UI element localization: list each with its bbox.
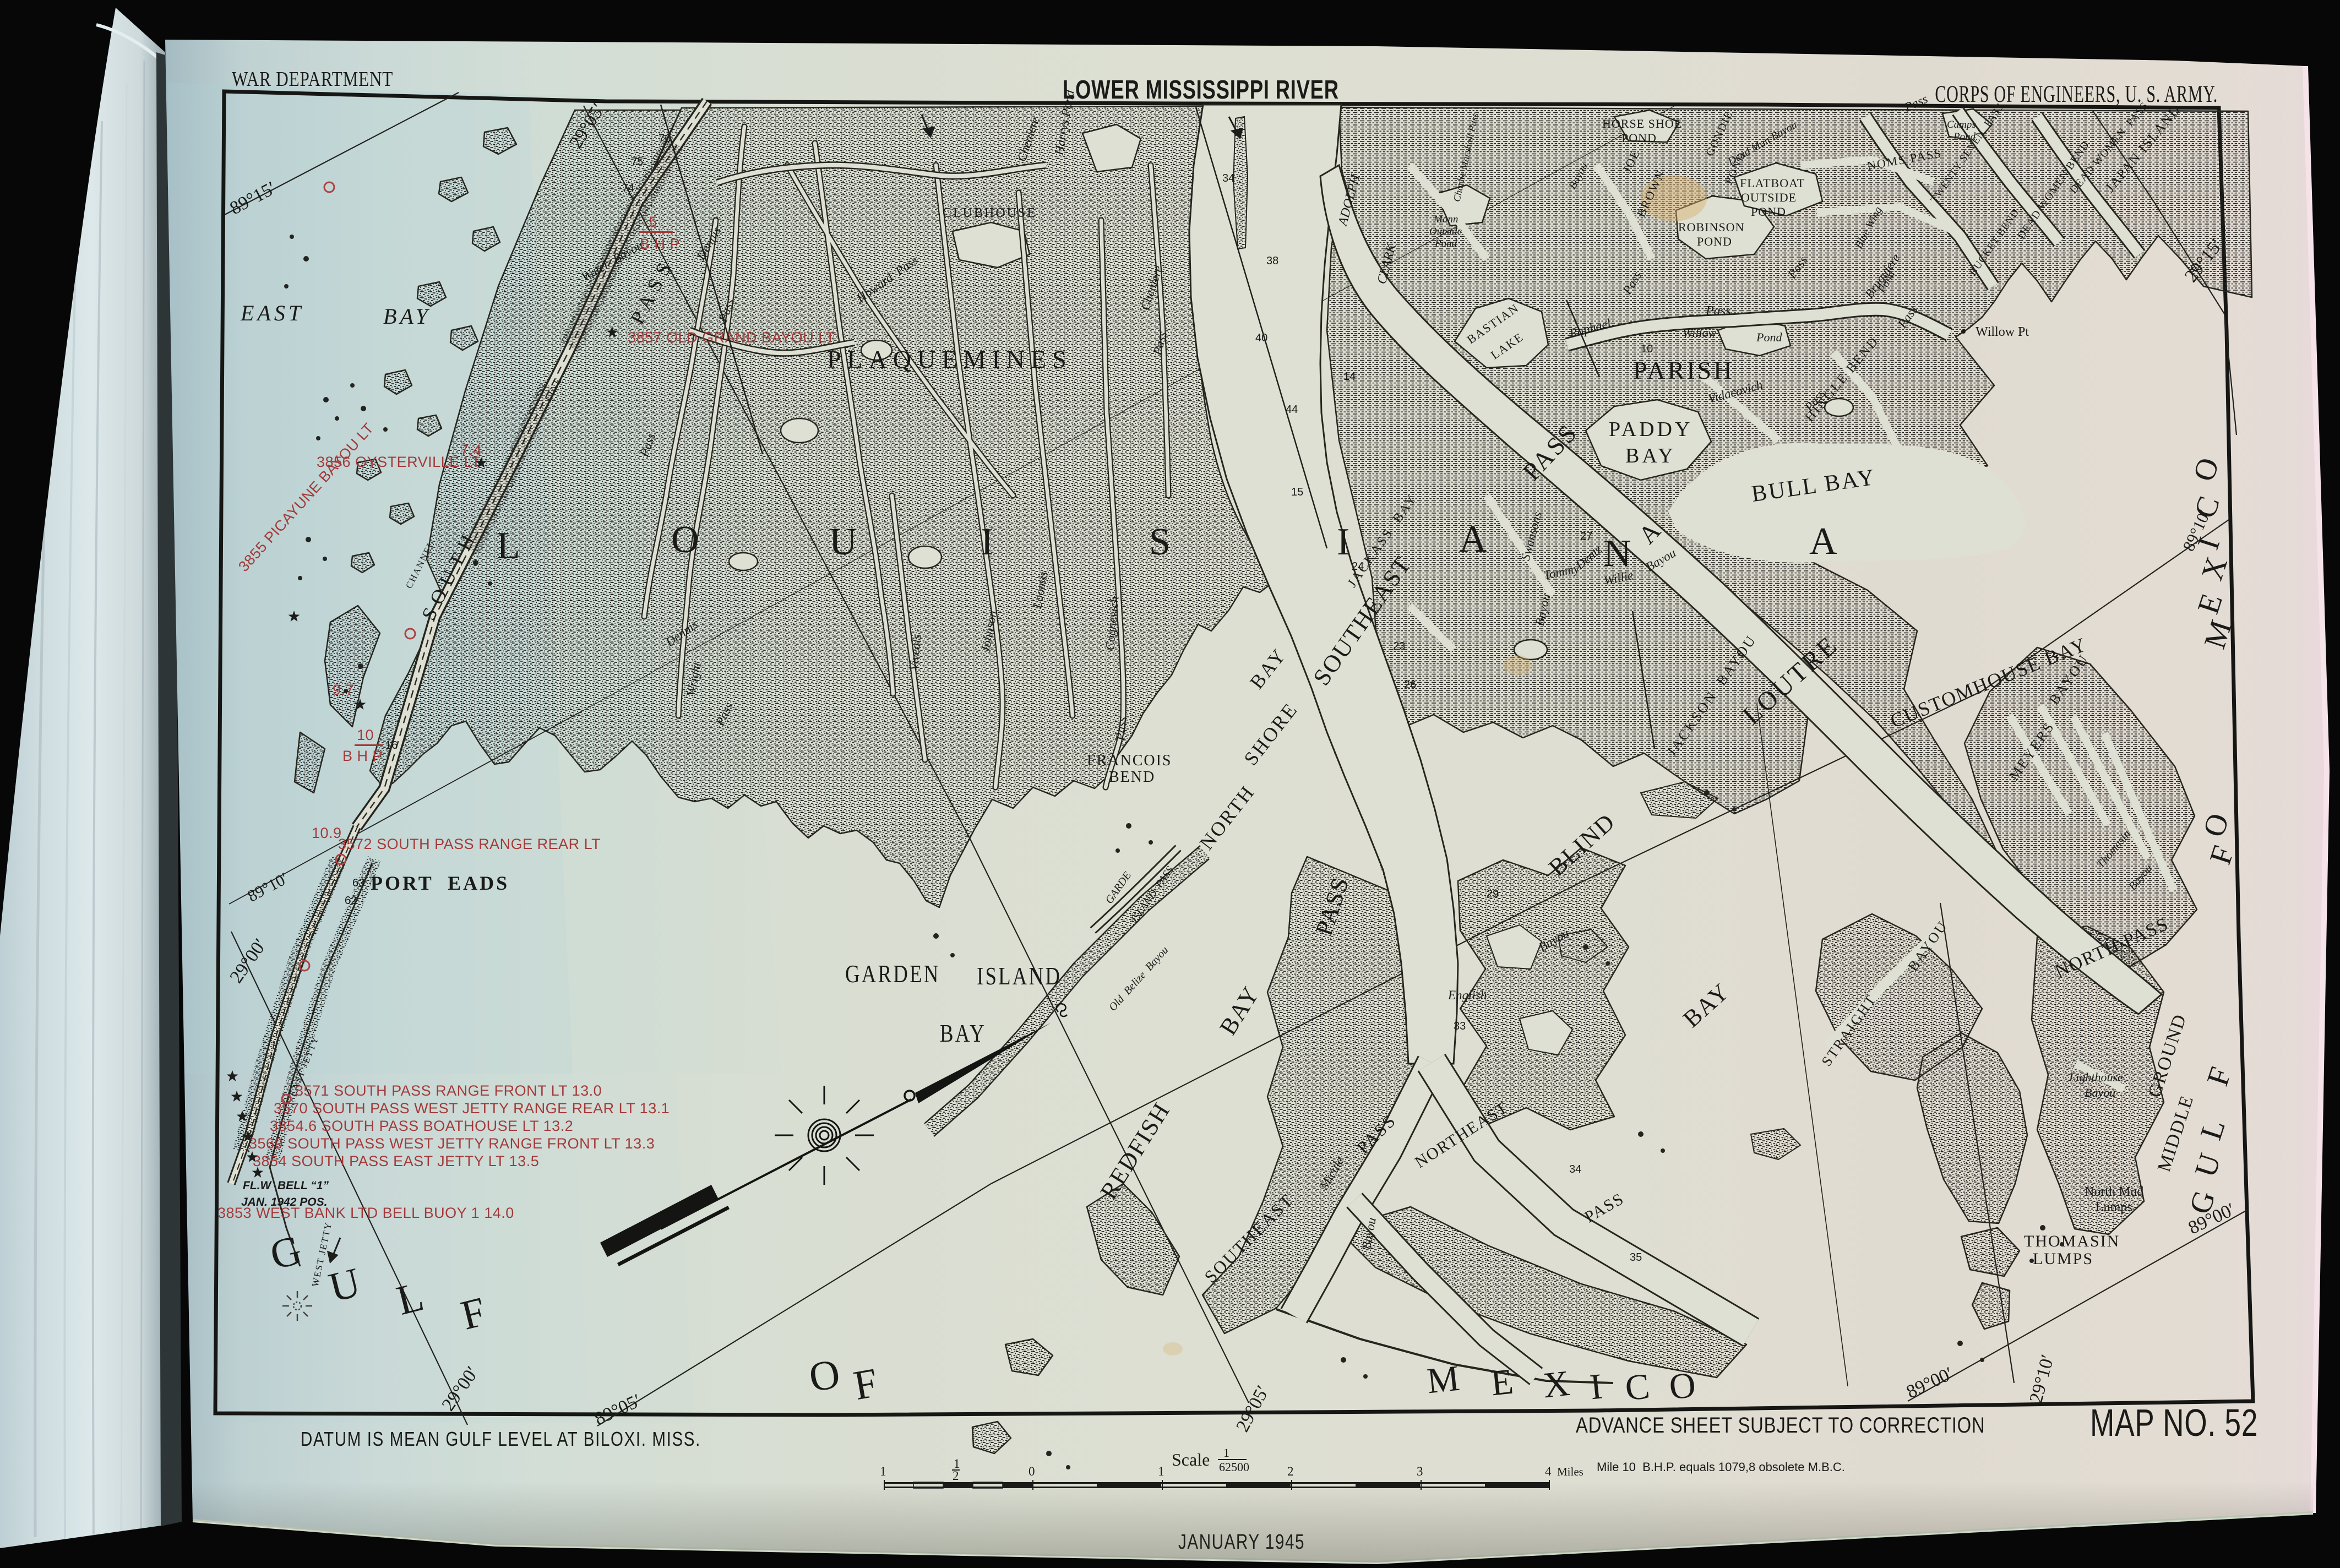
svg-text:POND: POND [1621,131,1657,145]
svg-text:PLAQUEMINES: PLAQUEMINES [827,345,1073,373]
svg-text:PADDY: PADDY [1609,418,1693,441]
svg-text:POND: POND [1751,205,1786,219]
svg-text:MAP NO. 52: MAP NO. 52 [2090,1402,2258,1445]
svg-text:14: 14 [1343,371,1356,383]
svg-text:A: A [1459,518,1487,560]
svg-text:27: 27 [1580,530,1592,542]
svg-text:Mile 10 B.H.P. equals 1079,8: Mile 10 B.H.P. equals 1079,8 obsolete M.… [1597,1460,1845,1474]
svg-text:5: 5 [649,214,657,230]
svg-text:I: I [1337,521,1349,563]
svg-text:O: O [671,519,699,561]
svg-text:1: 1 [880,1464,886,1478]
svg-text:FLATBOAT: FLATBOAT [1740,176,1805,190]
svg-text:ISLAND: ISLAND [977,962,1062,990]
svg-text:2: 2 [1287,1464,1294,1478]
svg-text:3569 SOUTH PASS WEST JETTY RAN: 3569 SOUTH PASS WEST JETTY RANGE FRONT L… [249,1135,655,1152]
svg-text:North Mud: North Mud [2085,1185,2143,1199]
svg-text:7.4: 7.4 [460,442,482,458]
svg-text:ROBINSON: ROBINSON [1678,220,1744,234]
svg-text:62: 62 [345,895,357,907]
svg-text:CLUBHOUSE: CLUBHOUSE [943,206,1037,220]
svg-text:Camps: Camps [1947,119,1976,130]
svg-text:24: 24 [1352,560,1364,573]
svg-text:BAY: BAY [940,1020,986,1048]
svg-text:Pass: Pass [1113,716,1129,742]
svg-text:Outside: Outside [1429,226,1462,237]
svg-text:75: 75 [631,156,643,168]
svg-text:10: 10 [1641,343,1653,355]
svg-text:3854.6 SOUTH PASS BOATHOUSE LT: 3854.6 SOUTH PASS BOATHOUSE LT 13.2 [270,1118,573,1134]
svg-text:BAY: BAY [383,304,431,329]
svg-text:Pass: Pass [1705,304,1730,318]
svg-text:HORSE SHOE: HORSE SHOE [1602,117,1682,130]
svg-text:S: S [1149,521,1171,563]
svg-text:Pond: Pond [1756,330,1782,344]
svg-text:EAST: EAST [240,301,304,325]
svg-text:3854 SOUTH PASS EAST JETTY LT: 3854 SOUTH PASS EAST JETTY LT 13.5 [253,1153,539,1169]
svg-text:English: English [1447,988,1487,1002]
svg-text:23: 23 [1393,640,1405,652]
svg-text:JAN. 1942 POS.: JAN. 1942 POS. [241,1196,327,1208]
svg-text:U: U [829,521,857,563]
svg-text:WAR DEPARTMENT: WAR DEPARTMENT [232,67,393,91]
svg-text:Lighthouse: Lighthouse [2069,1070,2123,1084]
svg-text:Mann: Mann [1433,214,1458,225]
svg-text:M: M [1425,1358,1461,1402]
svg-text:10.9: 10.9 [312,825,342,841]
svg-text:B H P: B H P [640,236,680,252]
svg-text:BAY: BAY [1625,444,1676,467]
svg-text:FL.W BELL “1”: FL.W BELL “1” [243,1179,329,1192]
svg-text:38: 38 [1266,255,1278,267]
svg-text:OUTSIDE: OUTSIDE [1741,190,1797,204]
svg-text:34: 34 [1222,172,1234,184]
svg-text:E: E [1489,1362,1515,1404]
svg-text:Bayou: Bayou [2085,1086,2115,1099]
svg-text:L: L [497,525,520,567]
svg-text:34: 34 [1569,1163,1581,1175]
svg-text:PORT EADS: PORT EADS [371,872,509,894]
svg-text:Pond: Pond [1434,238,1457,249]
svg-text:Miles: Miles [1557,1465,1583,1478]
svg-text:26: 26 [1404,679,1416,691]
svg-text:3571 SOUTH PASS RANGE FRONT LT: 3571 SOUTH PASS RANGE FRONT LT 13.0 [295,1082,602,1099]
svg-text:X: X [1541,1363,1571,1406]
svg-text:PARISH: PARISH [1633,356,1734,384]
svg-text:2: 2 [953,1469,959,1483]
svg-text:9.7: 9.7 [333,682,354,698]
svg-text:33: 33 [1454,1020,1466,1032]
svg-text:0: 0 [1028,1464,1035,1478]
svg-text:DATUM IS MEAN GULF LEVEL AT BI: DATUM IS MEAN GULF LEVEL AT BILOXI. MISS… [301,1428,701,1450]
svg-text:3857 OLD GRAND BAYOU LT: 3857 OLD GRAND BAYOU LT [628,329,835,346]
svg-text:29: 29 [1487,888,1499,900]
svg-text:63: 63 [352,877,364,889]
svg-text:GARDEN: GARDEN [845,960,940,988]
svg-text:O: O [1667,1365,1697,1408]
svg-text:C: C [1623,1366,1651,1408]
svg-text:15: 15 [1291,486,1303,498]
svg-text:B H P: B H P [342,748,383,764]
svg-text:3570 SOUTH PASS WEST JETTY RAN: 3570 SOUTH PASS WEST JETTY RANGE REAR LT… [274,1100,670,1117]
svg-text:LOWER MISSISSIPPI RIVER: LOWER MISSISSIPPI RIVER [1063,75,1339,105]
svg-text:Lumps: Lumps [2096,1200,2132,1215]
svg-text:16: 16 [385,739,398,752]
svg-text:THOMASIN: THOMASIN [2024,1232,2120,1250]
svg-text:POND: POND [1697,235,1732,248]
svg-text:ADVANCE SHEET SUBJECT TO CORRE: ADVANCE SHEET SUBJECT TO CORRECTION [1576,1413,1985,1438]
svg-text:BEND: BEND [1109,769,1155,786]
svg-text:35: 35 [1630,1251,1642,1264]
svg-text:1: 1 [1223,1446,1229,1460]
svg-text:3572 SOUTH PASS RANGE REAR LT: 3572 SOUTH PASS RANGE REAR LT [338,836,601,852]
svg-text:1: 1 [1158,1464,1164,1478]
svg-text:74: 74 [622,182,634,194]
svg-text:10: 10 [357,727,374,743]
svg-text:LUMPS: LUMPS [2033,1250,2093,1268]
svg-text:FRANCOIS: FRANCOIS [1087,752,1172,769]
svg-text:Pond: Pond [1953,131,1976,143]
svg-text:62500: 62500 [1219,1460,1249,1474]
svg-text:Scale: Scale [1172,1450,1210,1469]
svg-text:Willow Pt: Willow Pt [1976,325,2029,339]
svg-text:I: I [981,521,993,563]
svg-text:3: 3 [1417,1464,1423,1478]
svg-text:N: N [1603,532,1631,575]
svg-text:Willow: Willow [1683,326,1716,340]
svg-text:4: 4 [1545,1464,1552,1478]
svg-text:CORPS OF ENGINEERS, U. S. ARMY: CORPS OF ENGINEERS, U. S. ARMY. [1935,81,2218,108]
svg-text:A: A [1809,520,1837,563]
